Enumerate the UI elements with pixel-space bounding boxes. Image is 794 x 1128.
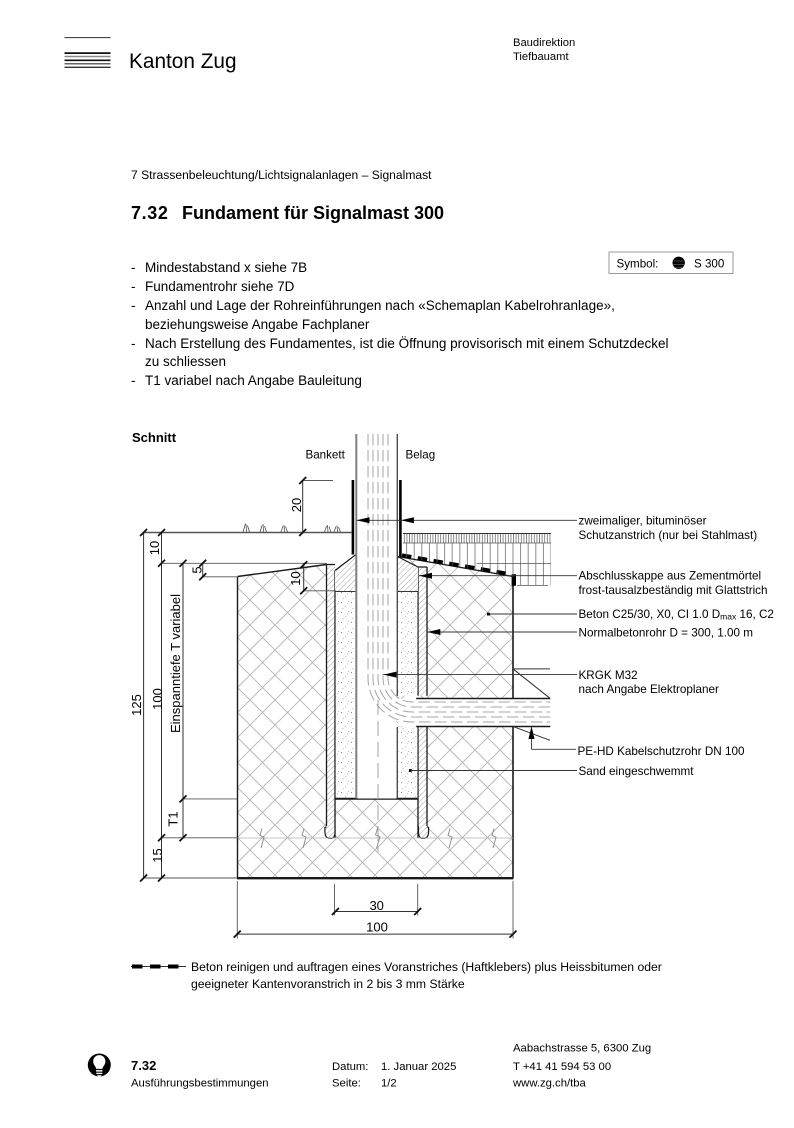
svg-text:Kanton Zug: Kanton Zug xyxy=(129,50,237,73)
svg-text:Nach Erstellung des Fundamente: Nach Erstellung des Fundamentes, ist die… xyxy=(145,336,669,351)
svg-text:7.32: 7.32 xyxy=(131,1058,156,1073)
svg-text:100: 100 xyxy=(150,688,165,710)
svg-text:Aabachstrasse 5, 6300 Zug: Aabachstrasse 5, 6300 Zug xyxy=(513,1043,651,1055)
svg-text:20: 20 xyxy=(289,498,304,512)
svg-text:Schnitt: Schnitt xyxy=(132,430,177,445)
svg-text:Datum:: Datum: xyxy=(332,1061,368,1073)
svg-text:Beton reinigen und auftragen e: Beton reinigen und auftragen eines Voran… xyxy=(191,960,662,974)
svg-text:Seite:: Seite: xyxy=(332,1078,361,1090)
svg-text:Baudirektion: Baudirektion xyxy=(513,37,575,49)
svg-text:15: 15 xyxy=(150,848,165,862)
svg-text:1. Januar 2025: 1. Januar 2025 xyxy=(381,1061,456,1073)
svg-text:1/2: 1/2 xyxy=(381,1078,397,1090)
svg-text:-: - xyxy=(131,298,136,313)
svg-text:beziehungsweise Angabe Fachpla: beziehungsweise Angabe Fachplaner xyxy=(145,317,370,332)
svg-text:10: 10 xyxy=(147,541,162,555)
svg-text:PE-HD Kabelschutzrohr DN 100: PE-HD Kabelschutzrohr DN 100 xyxy=(578,745,745,758)
svg-text:Tiefbauamt: Tiefbauamt xyxy=(513,51,569,63)
svg-text:Fundamentrohr siehe 7D: Fundamentrohr siehe 7D xyxy=(145,279,295,294)
svg-text:Beton C25/30, X0, CI 1.0 Dmax: Beton C25/30, X0, CI 1.0 Dmax 16, C2 xyxy=(579,608,774,622)
svg-text:Schutzanstrich (nur bei Stahlm: Schutzanstrich (nur bei Stahlmast) xyxy=(579,529,758,542)
svg-text:frost-tausalzbeständig mit Gla: frost-tausalzbeständig mit Glattstrich xyxy=(579,584,768,597)
svg-text:-: - xyxy=(131,373,136,388)
svg-text:S 300: S 300 xyxy=(694,258,724,271)
svg-text:7 Strassenbeleuchtung/Lichtsig: 7 Strassenbeleuchtung/Lichtsignalanlagen… xyxy=(131,168,432,182)
svg-text:Fundament für Signalmast 300: Fundament für Signalmast 300 xyxy=(182,203,444,223)
svg-text:Bankett: Bankett xyxy=(306,449,346,462)
svg-text:Abschlusskappe aus Zementmörte: Abschlusskappe aus Zementmörtel xyxy=(579,570,762,583)
svg-text:www.zg.ch/tba: www.zg.ch/tba xyxy=(512,1078,587,1090)
svg-text:Anzahl und Lage der Rohreinfüh: Anzahl und Lage der Rohreinführungen nac… xyxy=(145,298,615,313)
svg-text:T +41 41 594 53 00: T +41 41 594 53 00 xyxy=(513,1061,611,1073)
svg-text:geeigneter Kantenvoranstrich i: geeigneter Kantenvoranstrich in 2 bis 3 … xyxy=(191,977,465,991)
svg-text:Normalbetonrohr D = 300, 1.00: Normalbetonrohr D = 300, 1.00 m xyxy=(579,627,753,640)
svg-text:T1: T1 xyxy=(166,811,181,826)
svg-text:nach Angabe Elektroplaner: nach Angabe Elektroplaner xyxy=(579,683,719,696)
svg-text:125: 125 xyxy=(129,694,144,716)
svg-text:zweimaliger, bituminöser: zweimaliger, bituminöser xyxy=(579,515,707,528)
svg-text:-: - xyxy=(131,336,136,351)
svg-text:30: 30 xyxy=(369,898,383,913)
svg-text:Sand eingeschwemmt: Sand eingeschwemmt xyxy=(579,765,695,778)
svg-text:Einspanntiefe T variabel: Einspanntiefe T variabel xyxy=(168,594,183,733)
svg-text:10: 10 xyxy=(288,571,303,585)
svg-text:zu schliessen: zu schliessen xyxy=(145,354,226,369)
svg-text:-: - xyxy=(131,260,136,275)
svg-text:-: - xyxy=(131,279,136,294)
svg-text:Belag: Belag xyxy=(406,449,436,462)
svg-text:Ausführungsbestimmungen: Ausführungsbestimmungen xyxy=(131,1078,269,1090)
svg-text:Symbol:: Symbol: xyxy=(617,258,659,271)
svg-text:7.32: 7.32 xyxy=(131,203,168,223)
svg-text:T1 variabel nach Angabe Baulei: T1 variabel nach Angabe Bauleitung xyxy=(145,373,362,388)
svg-text:5: 5 xyxy=(190,566,205,573)
svg-text:KRGK M32: KRGK M32 xyxy=(579,669,638,682)
svg-text:100: 100 xyxy=(366,920,388,935)
svg-text:Mindestabstand x siehe 7B: Mindestabstand x siehe 7B xyxy=(145,260,307,275)
